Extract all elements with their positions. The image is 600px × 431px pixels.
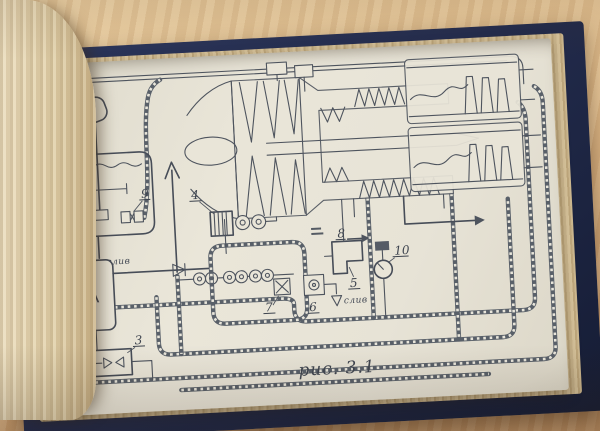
schematic-diagram: слив bbox=[16, 38, 569, 418]
output-arrow bbox=[403, 192, 485, 229]
figure-caption: рис. 3.1 bbox=[298, 357, 376, 381]
svg-text:9: 9 bbox=[141, 186, 150, 200]
callout-10: 10 bbox=[388, 243, 411, 262]
svg-text:7: 7 bbox=[265, 300, 274, 314]
svg-text:10: 10 bbox=[394, 243, 410, 258]
unit-6 bbox=[304, 274, 337, 296]
afterburner-duct-bottom bbox=[408, 121, 543, 192]
book-page: слив bbox=[16, 38, 569, 418]
svg-text:4: 4 bbox=[190, 188, 199, 202]
svg-text:3: 3 bbox=[134, 333, 143, 347]
callout-5: 5 bbox=[347, 267, 360, 291]
photo-of-open-book: слив bbox=[0, 0, 600, 431]
svg-text:8: 8 bbox=[337, 226, 346, 240]
drain-2: слив bbox=[332, 294, 368, 307]
pressure-gauge-10 bbox=[373, 241, 395, 318]
callout-6: 6 bbox=[307, 300, 320, 315]
callout-9: 9 bbox=[133, 186, 151, 211]
callout-4: 4 bbox=[189, 187, 214, 215]
valve-9 bbox=[121, 211, 144, 223]
callout-8: 8 bbox=[335, 226, 346, 241]
svg-text:6: 6 bbox=[309, 300, 318, 314]
afterburner-duct-top bbox=[404, 53, 535, 124]
drain-2-label: слив bbox=[344, 295, 368, 306]
feed-riser-arrow bbox=[164, 162, 184, 273]
curled-pages-stack bbox=[0, 0, 96, 420]
svg-text:5: 5 bbox=[350, 276, 358, 290]
small-handwritten-marks bbox=[311, 228, 323, 234]
valve-7 bbox=[274, 278, 291, 295]
